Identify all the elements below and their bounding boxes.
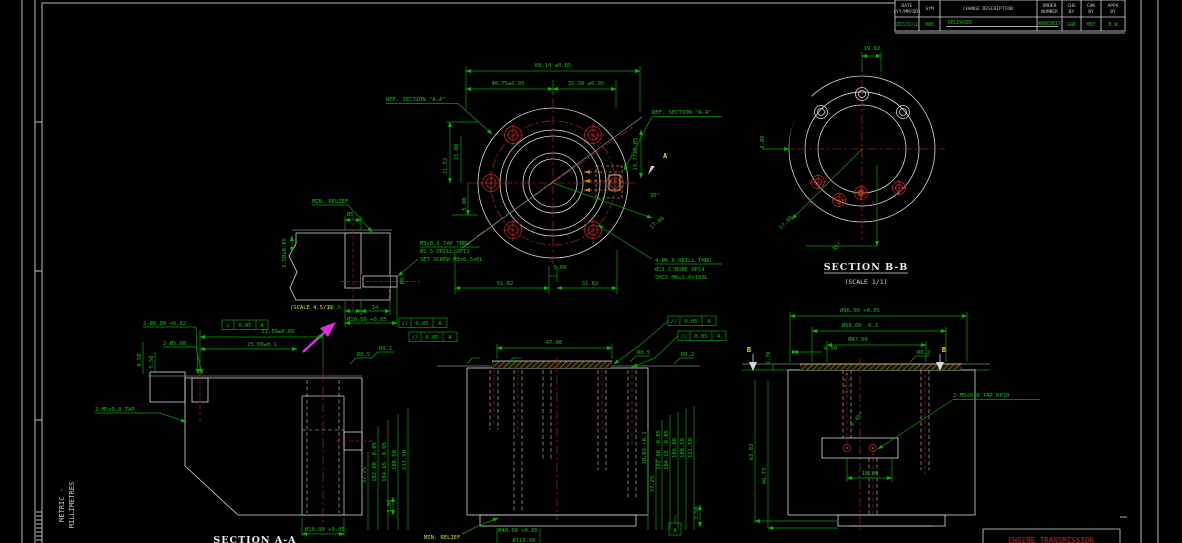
units-note-line1: METRIC - (58, 488, 66, 522)
aa-dim-left1: 8.50 (137, 353, 143, 366)
rv-tap-note: 2-M5x0.8 TAP DP10 (953, 393, 1009, 399)
aa-dim-holes2: 2-Ø5.00 (163, 340, 186, 347)
rev-col-chg: CHG (1067, 3, 1076, 9)
drill-note-line2: Ø11 C'BORE DP14 (655, 266, 705, 273)
rev-col-date2: (YY/MM/DD) (893, 9, 921, 15)
mid-dim-small: 3.50 (694, 506, 700, 519)
cad-drawing-sheet: METRIC - MILLIMETRES DATE (YY/MM/DD) SYM… (0, 0, 1182, 543)
aa-fillet-r2: R0.2 (379, 346, 392, 352)
rev-val-date: 2013/02/12 (896, 22, 918, 28)
detail-dim-dia: Ø5 (347, 211, 354, 218)
units-note-line2: MILLIMETRES (68, 482, 76, 528)
drawing-canvas: METRIC - MILLIMETRES DATE (YY/MM/DD) SYM… (0, 0, 1182, 543)
drill-note-line3: SHCS M6x1.0x100L (655, 275, 709, 281)
dim-right-top: 31.50 ±0.05 (568, 81, 604, 87)
section-b-arrow-left: B (747, 346, 757, 371)
set-screw-note-line3: SET SCREW M3x0.5x6L (420, 257, 484, 263)
rv-dim-left-v: 1.70 (766, 351, 772, 364)
mid-fillet-r2: R0.2 (681, 352, 694, 358)
section-aa-title: SECTION A-A (213, 535, 296, 543)
section-bb-scale: (SCALE 1/1) (844, 278, 887, 286)
bb-dim-left: 2.00 (760, 135, 766, 148)
rev-col-desc: CHANGE DESCRIPTION (963, 6, 1013, 12)
rev-val-sym: 000 (925, 22, 934, 28)
section-b-letter-left: B (747, 346, 751, 354)
rev-val-chg: GGK (1067, 22, 1076, 28)
mid-stack-4: 104.65 -0.05 (664, 430, 670, 470)
middle-section-view: 47.00 // 0.05 A // 0.05 A R0.5 R0.2 18.0… (424, 316, 726, 543)
aa-dim-h2: 25.00±0.1 (247, 342, 277, 348)
detail-gdt-frame-2: // 0.05 A (409, 332, 457, 342)
detail-dim-left: 2.50±0.05 (282, 238, 288, 268)
rev-val-appv: B.W (1108, 22, 1118, 28)
min-relief-label: MIN. RELIEF (312, 199, 348, 205)
section-bb-title: SECTION B-B (824, 262, 909, 273)
mid-stack-2: 37.25 (650, 476, 656, 493)
ref-section-left: REF. SECTION "A-A" (386, 97, 446, 103)
section-bb-view: 19.02 2.00 17.00 35° SECTION B-B (SCALE … (760, 46, 945, 286)
rev-col-chg2: BY (1069, 9, 1075, 15)
gdt2-datum: A (448, 335, 452, 341)
rv-fillet-r1: R0.2 (917, 350, 930, 356)
gdt2-tolerance: 0.05 (425, 335, 438, 341)
aa-stack-3: 104.65 -0.05 (382, 442, 388, 482)
rv-dim-d2: Ø58.00 -0.1 (842, 322, 878, 329)
aa-stack-1: 37.25 (362, 467, 368, 484)
rv-dim-d1: Ø96.00 +0.05 (840, 307, 880, 314)
aa-stack-4: 108.50 (392, 450, 398, 470)
mid-dim-top: 47.00 (546, 340, 563, 346)
aa-dim-holes1: 2-Ø8.00 +0.02 (143, 320, 186, 327)
set-screw-note: M3x0.5 TAP THRU Ø2.5 DRILL DP11 SET SCRE… (398, 241, 484, 276)
mid-gdt2-tolerance: 0.05 (694, 334, 707, 340)
section-a-letter: A (663, 152, 668, 160)
bb-dim-angle: 35° (832, 242, 843, 253)
mid-gdt-frame-1: // 0.05 A (668, 316, 716, 326)
aa-tap-note: 2-M5x0.8 TAP (95, 407, 135, 413)
rv-chamfer: 2-45° (849, 411, 865, 427)
dim-angle: 35° (650, 193, 660, 199)
rev-val-chk: HKY (1086, 22, 1095, 28)
mid-gdt1-symbol: // (671, 319, 678, 325)
aa-dim-h1: 31.50±0.05 (261, 329, 294, 335)
mid-relief-label: MIN. RELIEF (424, 535, 460, 541)
ref-section-right: REF. SECTION "A-A" (652, 110, 712, 116)
dim-left-v3: 5.00 (462, 197, 468, 210)
dim-bottom-small: 5.00 (553, 265, 566, 271)
aa-dim-left2: 5.50 (149, 355, 155, 368)
bb-dim-diag: 17.00 (778, 215, 794, 231)
aa-gdt-symbol: ⊥ (226, 323, 230, 329)
drill-note-line1: 4-Ø6.6 DRILL THRU (655, 257, 711, 264)
gdt1-tolerance: 0.05 (415, 321, 428, 327)
rev-col-appv2: BY (1110, 9, 1116, 15)
rev-col-chk2: BY (1088, 9, 1094, 15)
rev-col-sym: SYM (925, 6, 934, 12)
detail-dim-b3: Ø10.50 +0.05 (347, 316, 387, 323)
rev-col-order: ORDER (1043, 3, 1057, 9)
aa-dim-bottom: Ø10.00 +0.05 (305, 526, 345, 533)
dim-left-v1: 15.00 (454, 144, 460, 161)
mid-stack-1: 18.03 +0.1 (642, 431, 648, 464)
rev-val-order: W905817 (1038, 21, 1061, 27)
mid-datum-label: A (673, 528, 677, 534)
dim-left-top: 46.75±0.05 (491, 81, 524, 87)
detail-dim-right: Ø8 (399, 278, 406, 285)
mid-fillet-r1: R0.5 (637, 350, 650, 356)
gdt1-symbol: // (402, 321, 409, 327)
aa-fillet-r1: R0.5 (357, 352, 370, 358)
detail-view: MIN. RELIEF Ø5 2.50±0.05 M3x0.5 TAP THRU… (282, 199, 484, 352)
mid-dim-bottom1: Ø40.00 +0.05 (498, 527, 538, 534)
detail-scale-label: (SCALE 4.5/1) (290, 305, 333, 311)
section-aa-view: 2-Ø8.00 +0.02 ⊥ 0.05 A 2-Ø5.00 31.50±0.0… (95, 320, 408, 543)
detail-gdt-frame-1: // 0.05 A (399, 318, 447, 328)
dim-bottom-left: 51.82 (497, 281, 514, 287)
rv-stack-left-1: 63.92 (749, 444, 755, 461)
aa-gdt-tolerance: 0.05 (238, 323, 251, 329)
right-section-view: B B Ø96.00 +0.05 Ø58.00 -0.1 Ø47.00 0.50… (742, 307, 1040, 530)
mid-stack-7: 111.50 (688, 438, 694, 458)
rv-stack-left-2: 46.73 (762, 468, 768, 485)
rv-dim-d3: Ø47.00 (848, 336, 868, 343)
mid-gdt2-symbol: // (681, 334, 688, 340)
gdt1-datum: A (438, 321, 442, 327)
mid-gdt1-datum: A (707, 319, 711, 325)
dim-bottom-right: 31.82 (582, 281, 599, 287)
mid-gdt-frame-2: // 0.05 A (678, 331, 726, 341)
rev-col-order2: NUMBER (1041, 9, 1058, 15)
mid-gdt2-datum: A (717, 334, 721, 340)
section-b-letter-right: B (942, 346, 946, 354)
rev-col-chk: CHK (1087, 3, 1096, 9)
bottom-title-block: ENGINE TRANSMISSION (983, 517, 1127, 543)
aa-stack-2: 102.00 -0.05 (372, 442, 378, 482)
mid-stack-3: 102.00 -0.05 (656, 430, 662, 470)
rev-col-date: DATE (901, 3, 912, 9)
aa-stack-5: 111.50 (402, 450, 408, 470)
revision-table: DATE (YY/MM/DD) SYM CHANGE DESCRIPTION O… (893, 0, 1125, 33)
mid-datum-box: A (669, 515, 681, 535)
mid-dim-bottom2: Ø110.00 (512, 537, 535, 543)
drill-note: 4-Ø6.6 DRILL THRU Ø11 C'BORE DP14 SHCS M… (655, 257, 722, 281)
detail-dim-b2: 14 (372, 305, 379, 311)
bb-dim-top: 19.02 (864, 46, 881, 52)
part-title-partial: ENGINE TRANSMISSION (1008, 536, 1094, 543)
mid-stack-6: 108.50 (680, 438, 686, 458)
gdt2-symbol: // (412, 335, 419, 341)
dim-left-v2: 31.52 (443, 158, 449, 175)
rev-col-appv: APPV (1107, 3, 1118, 9)
mid-gdt1-tolerance: 0.05 (684, 319, 697, 325)
set-screw-note-line2: Ø2.5 DRILL DP11 (420, 248, 470, 255)
aa-dim-base: 3.00 (387, 499, 393, 512)
section-a-arrow (648, 166, 655, 175)
rv-dim-d4: 0.50 (824, 346, 837, 352)
rev-val-desc: RELEASED (948, 20, 972, 26)
set-screw-note-line1: M3x0.5 TAP THRU (420, 241, 470, 247)
set-screw-highlight (584, 166, 622, 198)
sheet-ruler (36, 512, 42, 540)
rv-dim-center: 18.00 (862, 471, 879, 477)
dim-overall-width: 89.14 ±0.05 (535, 63, 571, 69)
mid-stack-5: 106.00 (672, 438, 678, 458)
